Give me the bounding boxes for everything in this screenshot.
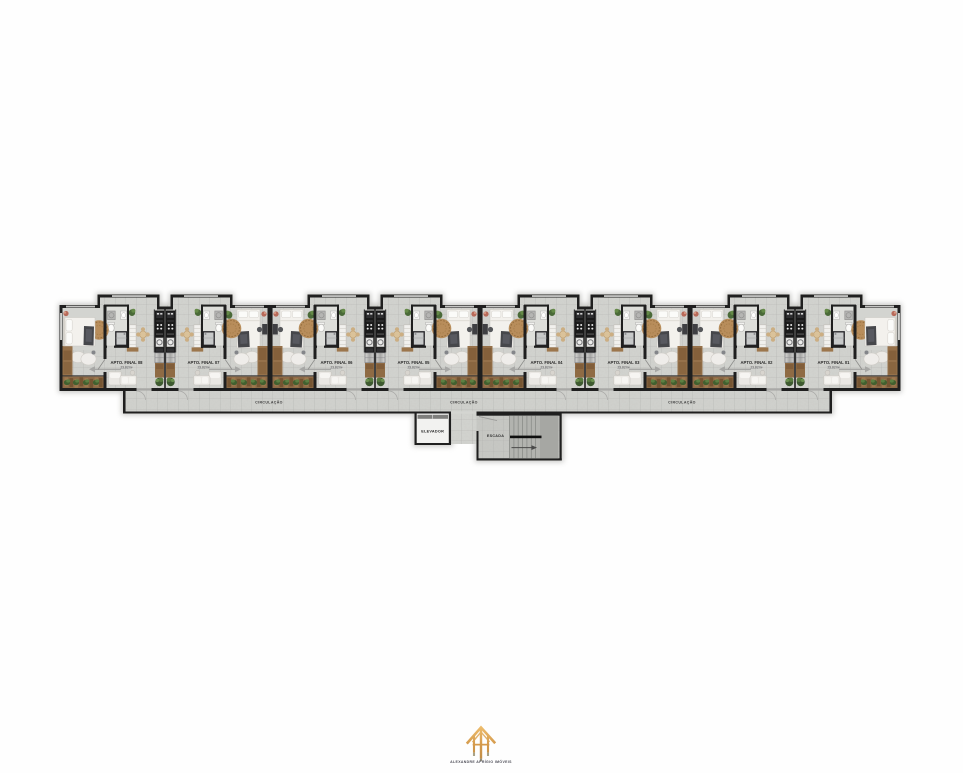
svg-text:CIRCULAÇÃO: CIRCULAÇÃO (450, 400, 478, 405)
svg-text:ELEVADOR: ELEVADOR (421, 430, 444, 434)
svg-text:APTO. FINAL 03: APTO. FINAL 03 (608, 360, 641, 365)
svg-text:23,82m²: 23,82m² (330, 365, 343, 369)
svg-text:ALEXANDRE APRÍGIO IMÓVEIS: ALEXANDRE APRÍGIO IMÓVEIS (450, 759, 512, 764)
svg-text:APTO. FINAL 08: APTO. FINAL 08 (111, 360, 144, 365)
svg-text:APTO. FINAL 06: APTO. FINAL 06 (321, 360, 354, 365)
svg-text:ESCADA: ESCADA (487, 434, 504, 438)
svg-text:CIRCULAÇÃO: CIRCULAÇÃO (668, 400, 696, 405)
svg-text:23,82m²: 23,82m² (120, 365, 133, 369)
svg-text:23,82m²: 23,82m² (407, 365, 420, 369)
svg-text:APTO. FINAL 07: APTO. FINAL 07 (188, 360, 221, 365)
svg-text:23,82m²: 23,82m² (827, 365, 840, 369)
svg-text:APTO. FINAL 02: APTO. FINAL 02 (741, 360, 774, 365)
svg-text:23,82m²: 23,82m² (197, 365, 210, 369)
svg-text:APTO. FINAL 05: APTO. FINAL 05 (398, 360, 431, 365)
svg-text:APTO. FINAL 01: APTO. FINAL 01 (818, 360, 851, 365)
svg-text:23,82m²: 23,82m² (540, 365, 553, 369)
svg-text:23,82m²: 23,82m² (617, 365, 630, 369)
svg-text:23,82m²: 23,82m² (750, 365, 763, 369)
svg-text:APTO. FINAL 04: APTO. FINAL 04 (531, 360, 564, 365)
svg-text:CIRCULAÇÃO: CIRCULAÇÃO (255, 400, 283, 405)
